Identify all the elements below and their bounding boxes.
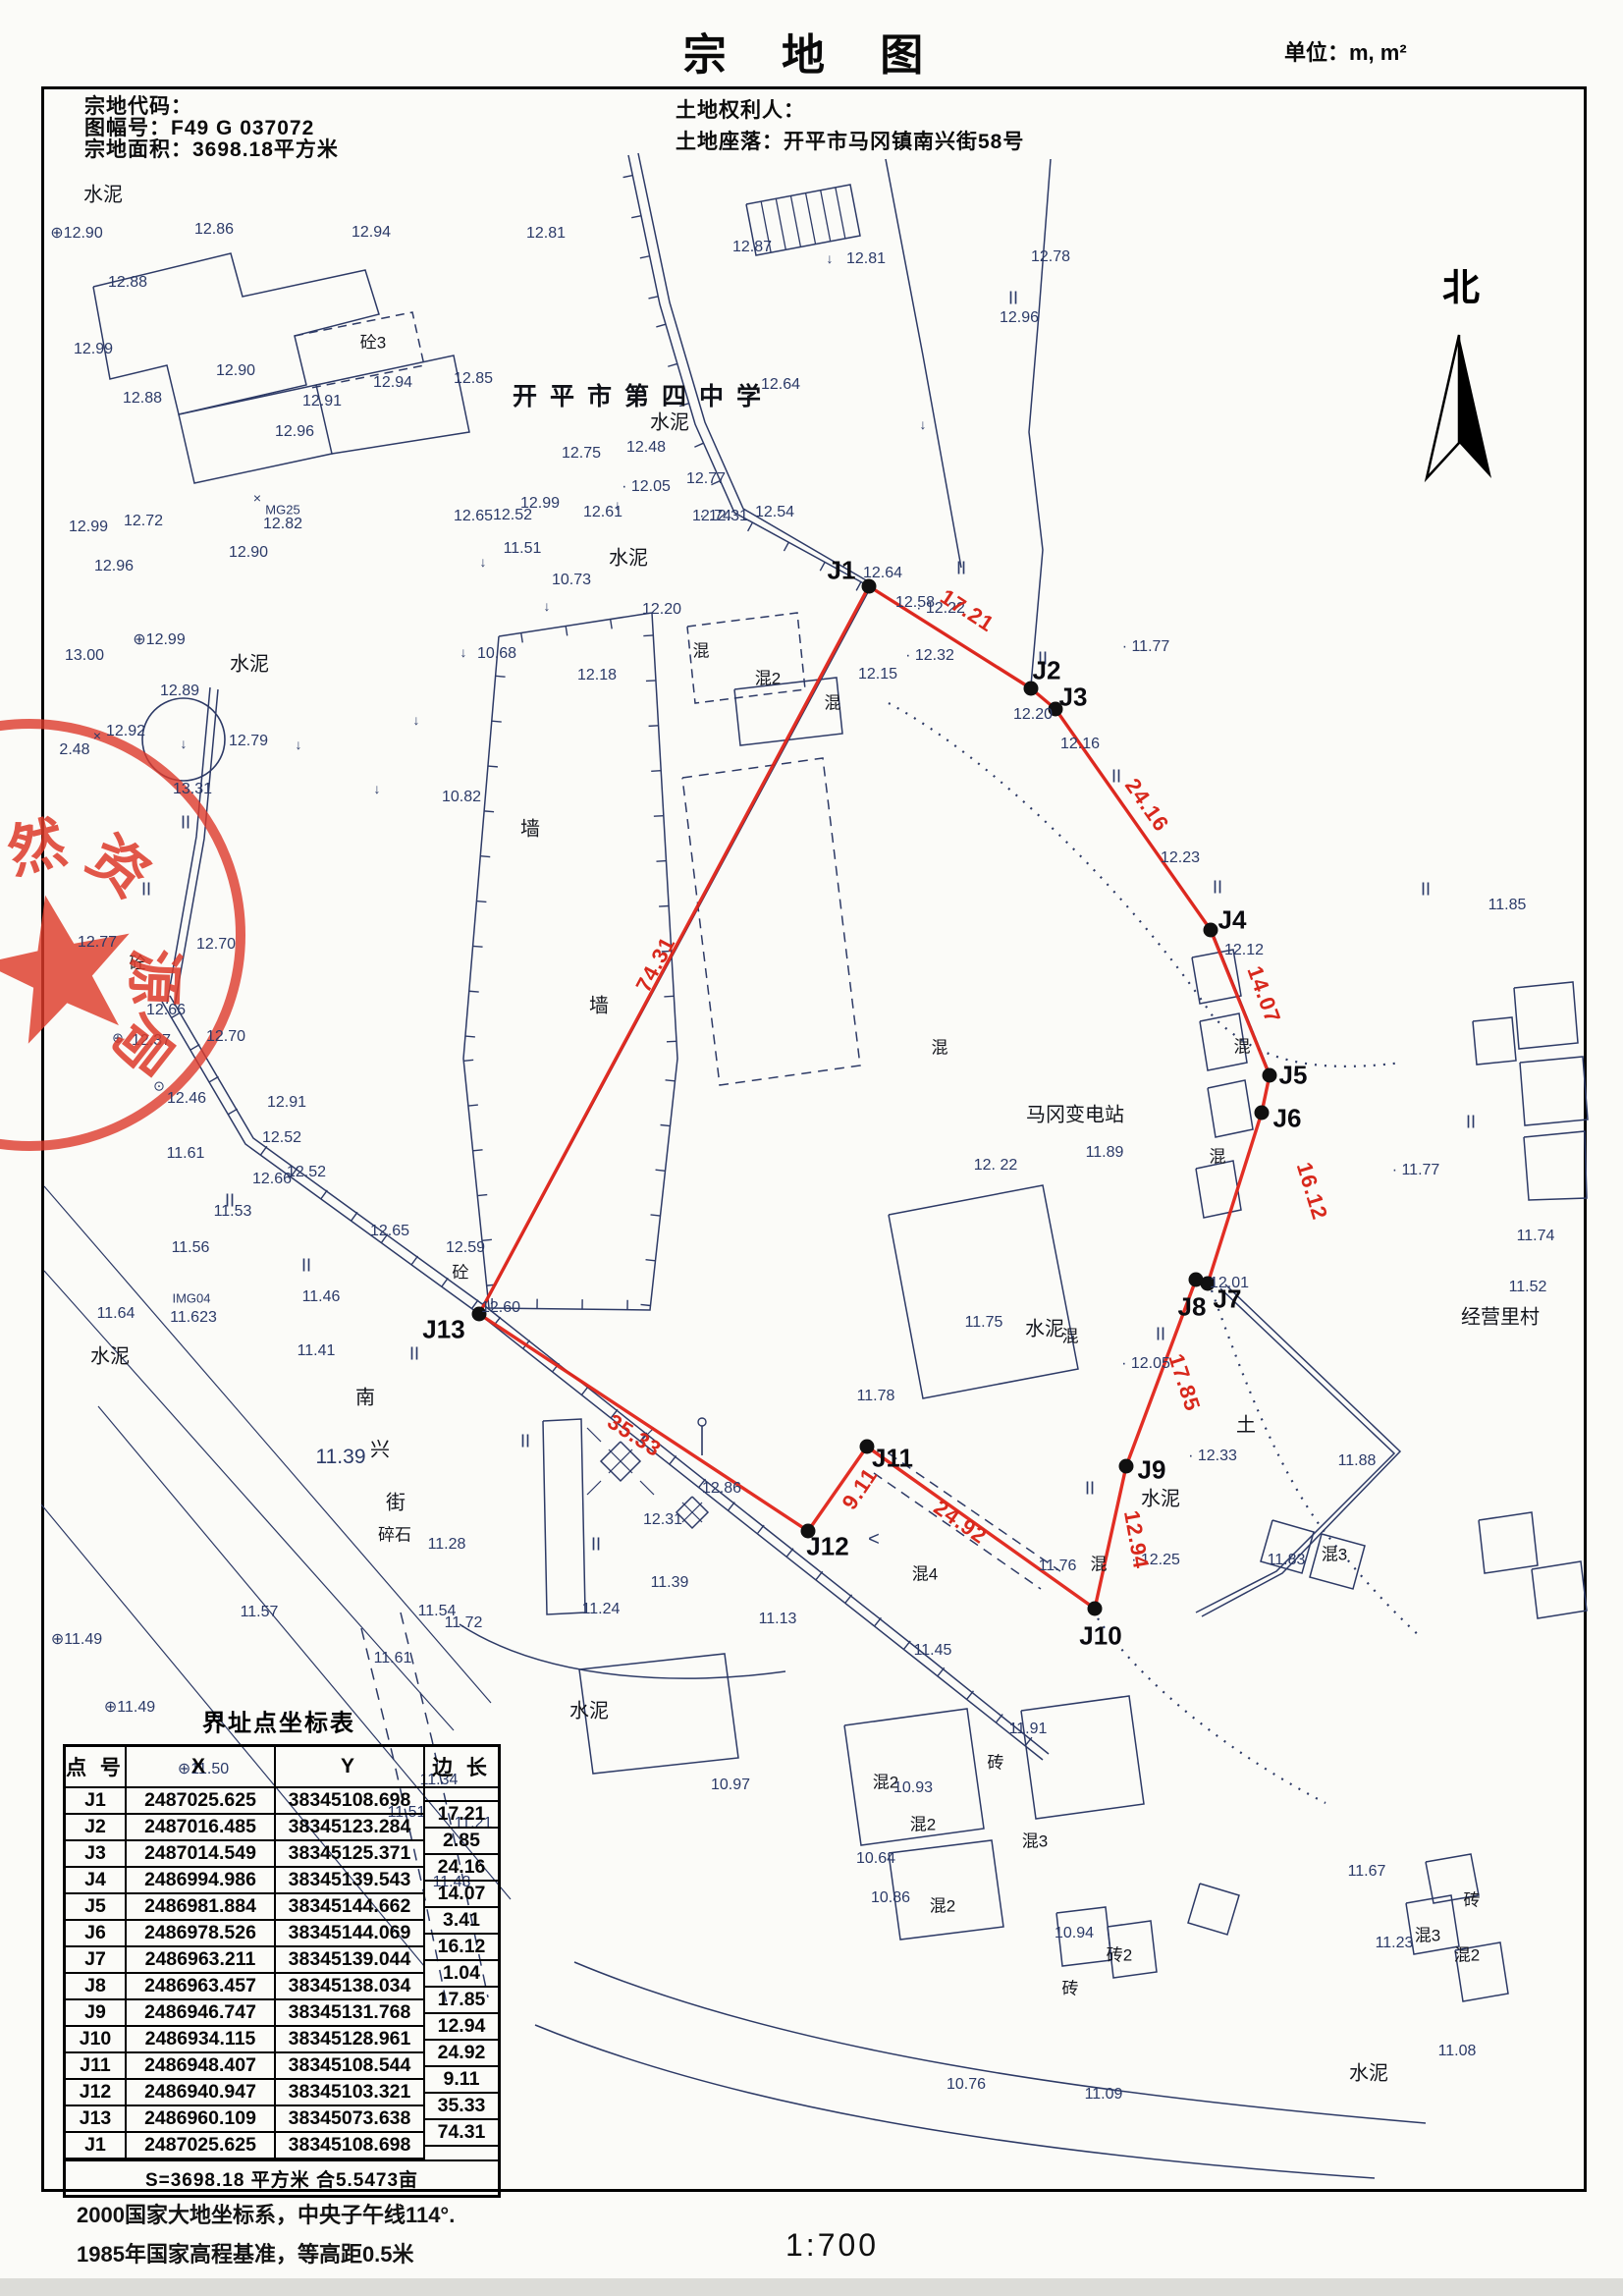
point-id-cell: J3: [66, 1841, 127, 1868]
y-coordinate-cell: 38345123.284: [276, 1815, 425, 1841]
x-coordinate-cell: 2486978.526: [127, 1921, 276, 1947]
point-id-cell: J6: [66, 1921, 127, 1947]
boundary-point-dot-J6: [1255, 1106, 1270, 1121]
edge-length-cell: 17.85: [425, 1988, 498, 2014]
x-coordinate-cell: 2487025.625: [127, 2133, 276, 2159]
x-coordinate-cell: 2486940.947: [127, 2080, 276, 2106]
point-id-cell: J7: [66, 1947, 127, 1974]
edge-length-cell: 74.31: [425, 2120, 498, 2147]
y-coordinate-cell: 38345144.662: [276, 1894, 425, 1921]
point-id-cell: J13: [66, 2106, 127, 2133]
y-coordinate-cell: 38345108.698: [276, 2133, 425, 2159]
fence-ticks: [172, 176, 1032, 1746]
y-coordinate-cell: 38345139.543: [276, 1868, 425, 1894]
point-id-cell: J11: [66, 2053, 127, 2080]
edge-length-cell: 14.07: [425, 1882, 498, 1908]
edge-column-spacer: [425, 1788, 498, 1802]
x-coordinate-cell: 2486994.986: [127, 1868, 276, 1894]
edge-length-column: 17.212.8524.1614.073.4116.121.0417.8512.…: [425, 1788, 498, 2159]
datum-note-1: 2000国家大地坐标系，中央子午线114°.: [77, 2198, 455, 2229]
edge-length-cell: 12.94: [425, 2014, 498, 2041]
table-column-header: 边 长: [425, 1747, 498, 1786]
boundary-point-dot-J9: [1119, 1459, 1134, 1474]
point-id-cell: J9: [66, 2000, 127, 2027]
y-coordinate-cell: 38345138.034: [276, 1974, 425, 2000]
area-summary: S=3698.18 平方米 合5.5473亩: [66, 2159, 498, 2195]
boundary-point-dot-J8: [1189, 1273, 1204, 1287]
edge-length-cell: 24.16: [425, 1855, 498, 1882]
x-coordinate-cell: 2486963.457: [127, 1974, 276, 2000]
coordinate-table: 点 号XY边 长 J12487025.62538345108.698J22487…: [63, 1744, 501, 2198]
y-coordinate-cell: 38345139.044: [276, 1947, 425, 1974]
y-coordinate-cell: 38345144.069: [276, 1921, 425, 1947]
edge-column-spacer: [425, 2147, 498, 2160]
point-id-cell: J12: [66, 2080, 127, 2106]
edge-length-cell: 16.12: [425, 1935, 498, 1961]
y-coordinate-cell: 38345131.768: [276, 2000, 425, 2027]
boundary-point-dot-J10: [1088, 1602, 1103, 1616]
edge-length-cell: 17.21: [425, 1802, 498, 1829]
parcel-boundary: [472, 579, 1277, 1616]
x-coordinate-cell: 2486960.109: [127, 2106, 276, 2133]
y-coordinate-cell: 38345103.321: [276, 2080, 425, 2106]
coordinate-table-title: 界址点坐标表: [202, 1704, 355, 1738]
boundary-point-dot-J5: [1263, 1068, 1277, 1083]
x-coordinate-cell: 2486963.211: [127, 1947, 276, 1974]
boundary-point-dot-J13: [472, 1307, 487, 1322]
edge-length-cell: 1.04: [425, 1961, 498, 1988]
x-coordinate-cell: 2486981.884: [127, 1894, 276, 1921]
boundary-point-dot-J3: [1049, 702, 1063, 717]
y-coordinate-cell: 38345108.698: [276, 1788, 425, 1815]
y-coordinate-cell: 38345108.544: [276, 2053, 425, 2080]
edge-length-cell: 2.85: [425, 1829, 498, 1855]
y-coordinate-cell: 38345128.961: [276, 2027, 425, 2053]
x-coordinate-cell: 2486946.747: [127, 2000, 276, 2027]
official-seal: [0, 724, 241, 1146]
x-coordinate-cell: 2486948.407: [127, 2053, 276, 2080]
x-coordinate-cell: 2486934.115: [127, 2027, 276, 2053]
table-column-header: X: [127, 1747, 276, 1786]
edge-length-cell: 24.92: [425, 2041, 498, 2067]
point-id-cell: J1: [66, 2133, 127, 2159]
table-column-header: Y: [276, 1747, 425, 1786]
point-id-cell: J5: [66, 1894, 127, 1921]
map-scale: 1:700: [785, 2227, 879, 2264]
north-arrow: 北: [1422, 257, 1500, 522]
cadastral-map-sheet: 宗 地 图 单位：m, m² 宗地代码： 图幅号：F49 G 037072 宗地…: [0, 0, 1623, 2296]
boundary-point-dot-J4: [1204, 923, 1218, 938]
y-coordinate-cell: 38345073.638: [276, 2106, 425, 2133]
boundary-point-dot-J2: [1024, 682, 1039, 696]
boundary-point-dot-J12: [801, 1524, 816, 1539]
boundary-point-dot-J1: [862, 579, 877, 594]
edge-length-cell: 9.11: [425, 2067, 498, 2094]
north-label: 北: [1422, 257, 1500, 311]
point-id-cell: J1: [66, 1788, 127, 1815]
point-id-cell: J4: [66, 1868, 127, 1894]
x-coordinate-cell: 2487016.485: [127, 1815, 276, 1841]
point-id-cell: J8: [66, 1974, 127, 2000]
point-id-cell: J10: [66, 2027, 127, 2053]
coordinate-table-header: 点 号XY边 长: [66, 1747, 498, 1788]
edge-length-cell: 35.33: [425, 2094, 498, 2120]
x-coordinate-cell: 2487025.625: [127, 1788, 276, 1815]
boundary-point-dot-J11: [860, 1440, 875, 1454]
x-coordinate-cell: 2487014.549: [127, 1841, 276, 1868]
datum-note-2: 1985年国家高程基准，等高距0.5米: [77, 2237, 414, 2269]
north-arrow-icon: [1422, 311, 1500, 518]
point-id-cell: J2: [66, 1815, 127, 1841]
y-coordinate-cell: 38345125.371: [276, 1841, 425, 1868]
table-column-header: 点 号: [66, 1747, 127, 1786]
scan-edge-strip: [0, 2278, 1623, 2296]
edge-length-cell: 3.41: [425, 1908, 498, 1935]
